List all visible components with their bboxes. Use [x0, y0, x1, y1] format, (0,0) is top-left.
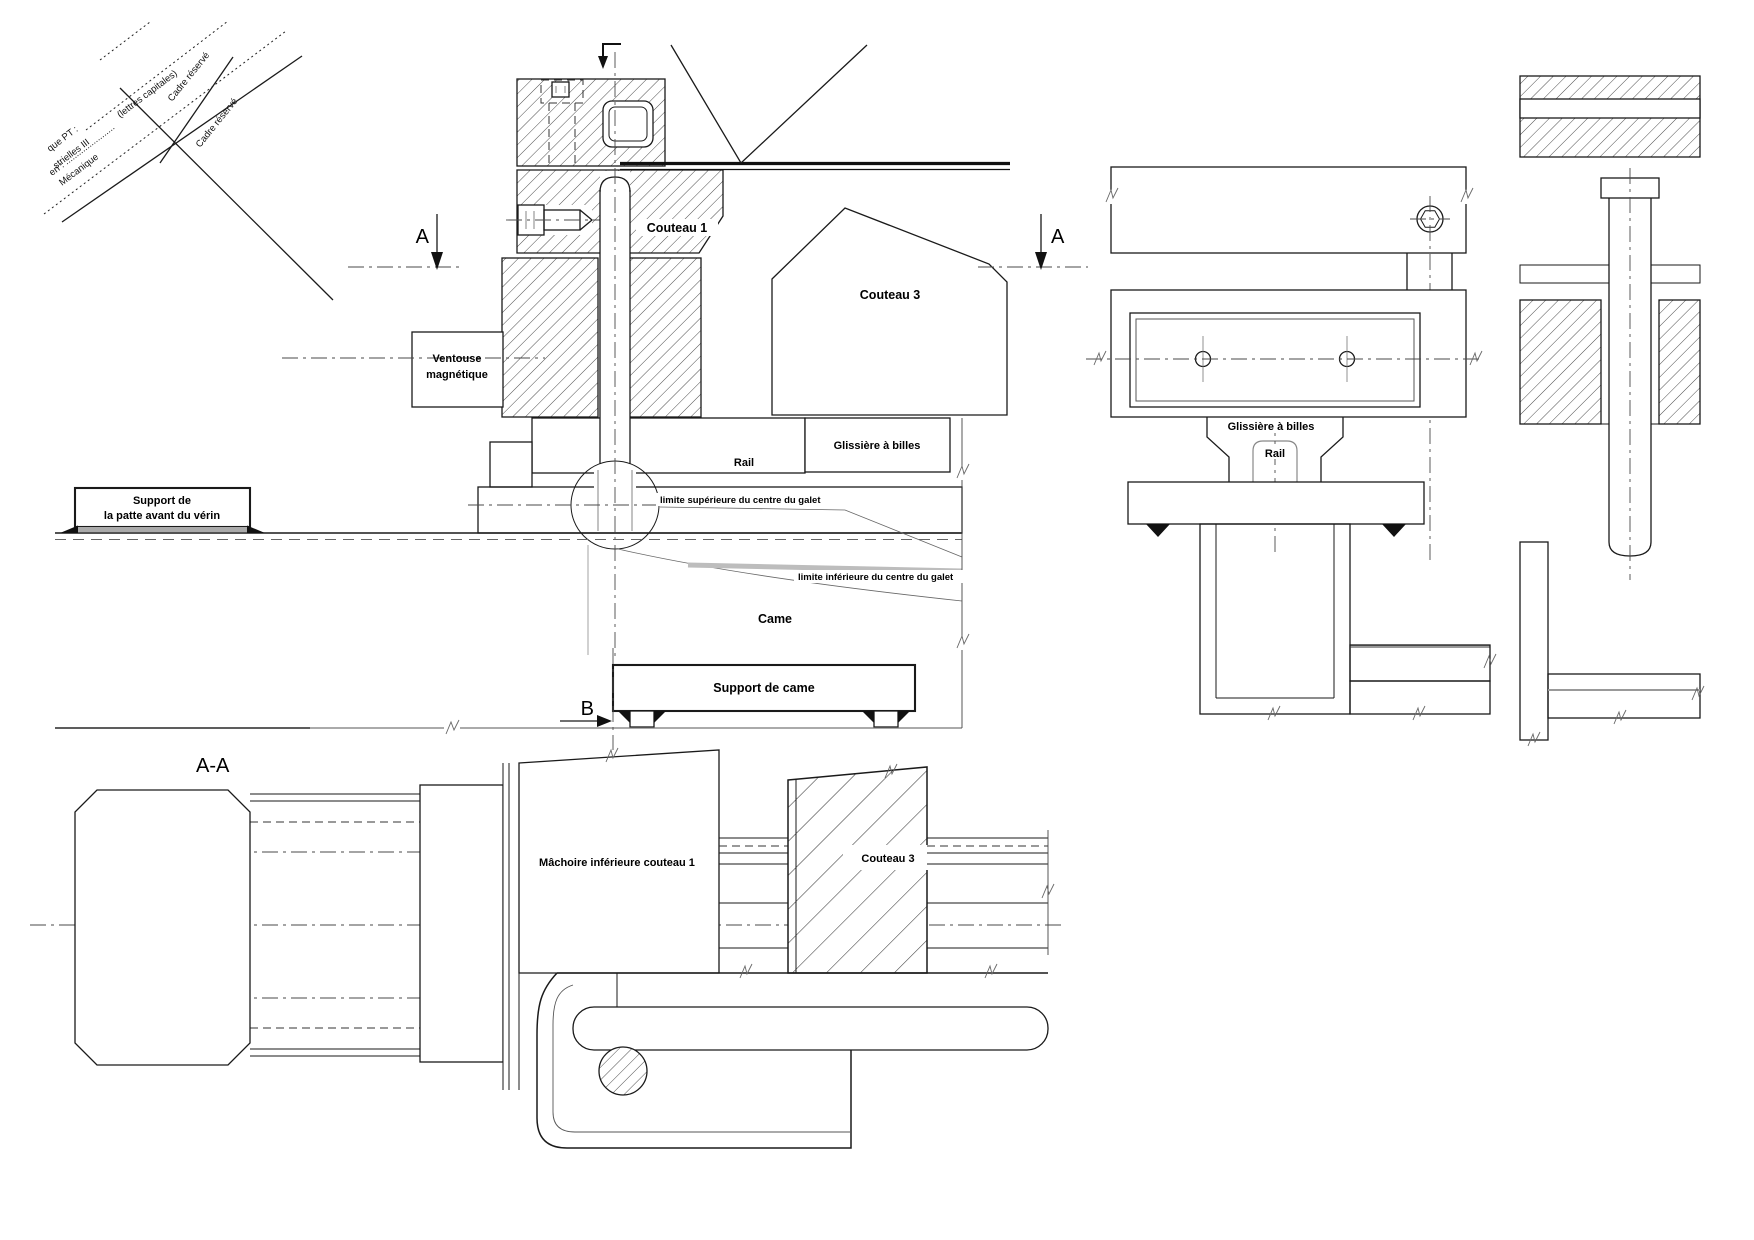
cylinder-block [75, 790, 250, 1065]
section-mark-a-right: A [1051, 226, 1065, 248]
label-support-patte-line2: la patte avant du vérin [104, 510, 220, 522]
square-tube-section [603, 101, 653, 147]
section-mark-b: B [581, 698, 594, 720]
label-support-came: Support de came [713, 681, 814, 695]
jaw-pin-circle [599, 1047, 647, 1095]
engineering-drawing: (lettres capitales) en : ...............… [0, 0, 1754, 1240]
top-bar [1111, 167, 1466, 253]
rail-block [532, 418, 805, 473]
label-ventouse-line1: Ventouse [433, 353, 482, 365]
slide-plate [1111, 290, 1466, 417]
thin-plates [503, 763, 519, 1090]
label-support-patte-line1: Support de [133, 495, 191, 507]
far-right-hatched-right [1659, 300, 1700, 424]
clamp-block-left [502, 258, 598, 417]
far-right-hatched-left [1520, 300, 1601, 424]
side-screw [506, 205, 600, 235]
label-glissiere-upper: Glissière à billes [834, 440, 921, 452]
flange-plate [420, 785, 503, 1062]
label-limite-inferieure: limite inférieure du centre du galet [798, 572, 954, 583]
label-ventouse-line2: magnétique [426, 369, 488, 381]
jaw-slot [573, 1007, 1048, 1050]
label-came: Came [758, 612, 792, 626]
label-limite-superieure: limite supérieure du centre du galet [660, 495, 821, 506]
label-rail-right: Rail [1265, 448, 1285, 460]
rail-base-plate [1128, 482, 1424, 524]
far-right-rod [1601, 168, 1659, 580]
label-glissiere-right: Glissière à billes [1228, 421, 1315, 433]
far-right-white-band [1520, 99, 1700, 118]
rail-step-block [490, 442, 532, 487]
sheet-background [0, 0, 1754, 1240]
clamp-block-right [629, 258, 701, 417]
section-title-aa: A-A [196, 755, 230, 777]
label-machoire: Mâchoire inférieure couteau 1 [539, 857, 695, 869]
label-couteau3-upper: Couteau 3 [860, 288, 920, 302]
label-couteau1: Couteau 1 [647, 221, 707, 235]
section-mark-a-left: A [416, 226, 430, 248]
label-rail-upper: Rail [734, 457, 754, 469]
label-couteau3-bottom: Couteau 3 [861, 853, 914, 865]
